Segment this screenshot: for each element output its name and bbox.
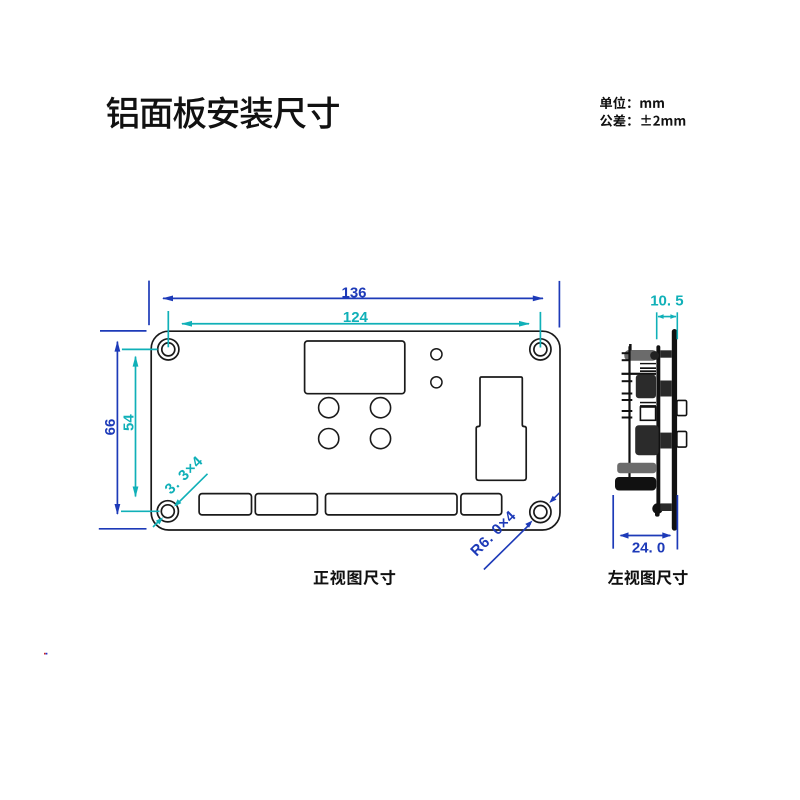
svg-text:10. 5: 10. 5: [650, 293, 683, 310]
svg-text:124: 124: [343, 309, 369, 326]
svg-text:24. 0: 24. 0: [632, 540, 665, 557]
svg-text:66: 66: [102, 419, 119, 436]
svg-text:54: 54: [121, 414, 138, 431]
svg-text:136: 136: [341, 284, 366, 301]
